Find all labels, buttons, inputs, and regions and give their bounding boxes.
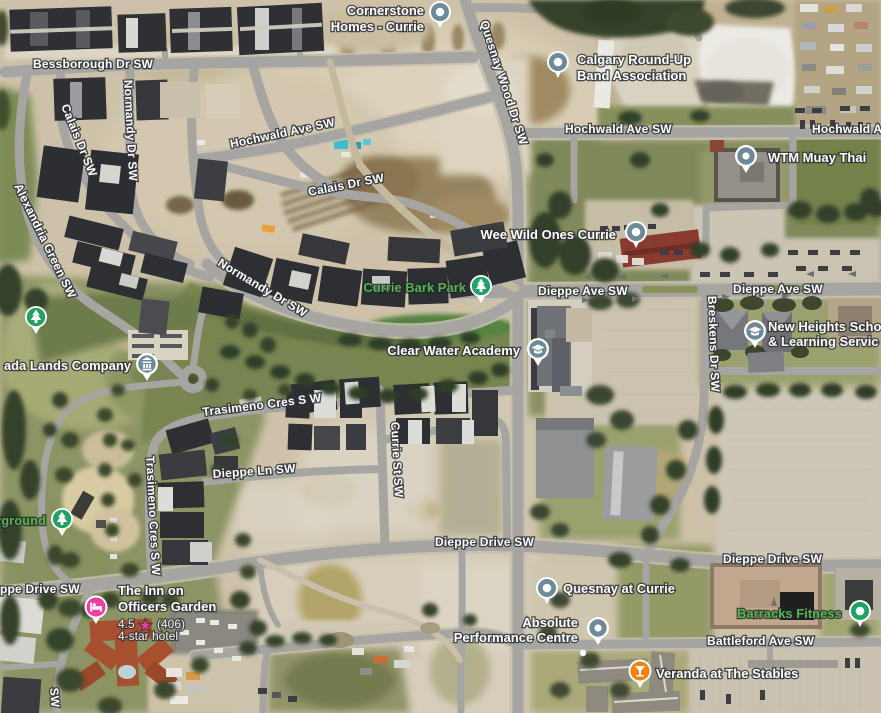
svg-text:Officers Garden: Officers Garden <box>118 599 216 614</box>
svg-text:SW: SW <box>47 687 62 708</box>
svg-text:Homes - Currie: Homes - Currie <box>331 19 424 34</box>
svg-text:ada Lands Company: ada Lands Company <box>4 358 132 373</box>
svg-text:Barracks Fitness: Barracks Fitness <box>737 606 842 621</box>
svg-text:Bessborough Dr SW: Bessborough Dr SW <box>33 57 154 71</box>
svg-text:& Learning Servic: & Learning Servic <box>768 334 879 349</box>
svg-text:Dieppe Drive SW: Dieppe Drive SW <box>723 552 822 566</box>
svg-text:Calgary Round-Up: Calgary Round-Up <box>577 52 691 67</box>
svg-text:Dieppe Ave SW: Dieppe Ave SW <box>538 284 628 298</box>
svg-text:Cornerstone: Cornerstone <box>347 3 424 18</box>
svg-text:ppe Drive SW: ppe Drive SW <box>0 582 80 596</box>
svg-text:Battleford Ave SW: Battleford Ave SW <box>707 634 815 648</box>
svg-text:Performance Centre: Performance Centre <box>454 630 578 645</box>
svg-text:Absolute: Absolute <box>522 615 578 630</box>
svg-text:Hochwald A: Hochwald A <box>812 122 881 136</box>
svg-text:Dieppe Ave SW: Dieppe Ave SW <box>733 282 823 296</box>
svg-text:Band Association: Band Association <box>577 68 686 83</box>
svg-text:Currie Bark Park: Currie Bark Park <box>363 280 466 295</box>
svg-text:Veranda at The Stables: Veranda at The Stables <box>656 666 798 681</box>
svg-text:yground: yground <box>0 513 46 528</box>
svg-text:4-star hotel: 4-star hotel <box>118 629 178 643</box>
svg-text:Hochwald Ave SW: Hochwald Ave SW <box>565 122 672 136</box>
svg-text:Wee Wild Ones Currie: Wee Wild Ones Currie <box>481 227 616 242</box>
svg-text:WTM Muay Thai: WTM Muay Thai <box>768 150 866 165</box>
svg-text:Quesnay at Currie: Quesnay at Currie <box>563 581 675 596</box>
svg-text:Dieppe Drive SW: Dieppe Drive SW <box>435 535 534 549</box>
svg-text:The Inn on: The Inn on <box>118 583 184 598</box>
svg-text:Clear Water Academy: Clear Water Academy <box>387 343 520 358</box>
svg-text:New Heights Scho: New Heights Scho <box>768 319 881 334</box>
